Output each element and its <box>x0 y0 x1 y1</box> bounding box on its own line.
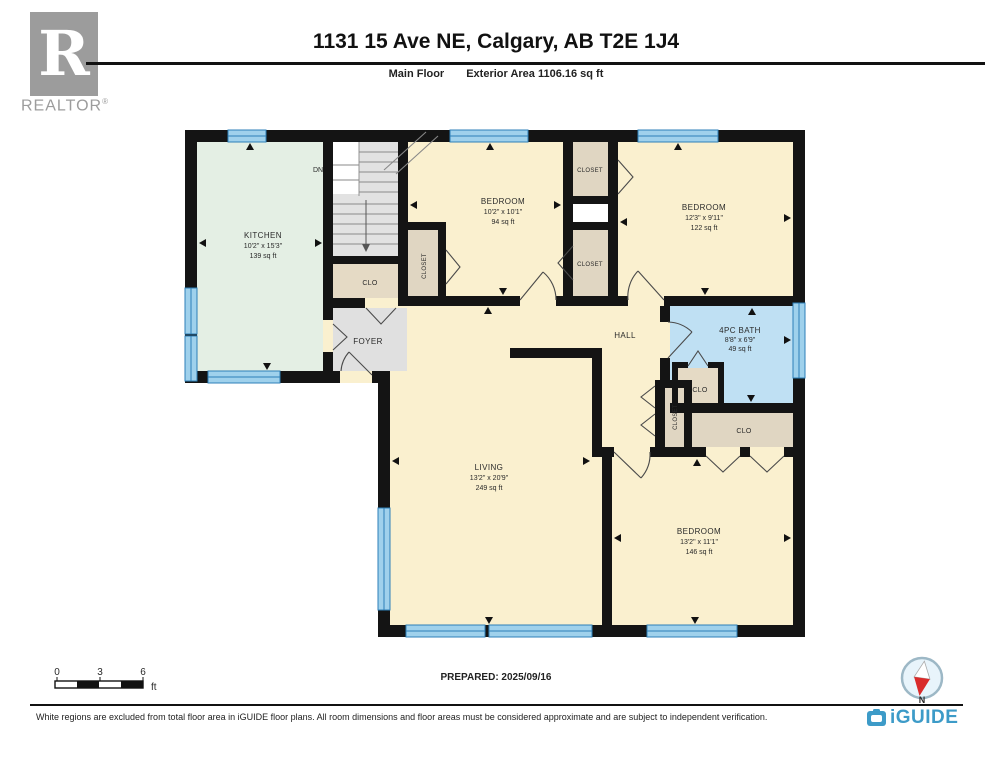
svg-text:49 sq ft: 49 sq ft <box>729 346 752 353</box>
closet-mid-upper-label: CLOSET <box>577 168 603 174</box>
stairs-landing <box>333 142 359 194</box>
svg-text:3: 3 <box>97 667 103 678</box>
closet-gap-white <box>573 204 608 222</box>
svg-text:13'2" x 20'9": 13'2" x 20'9" <box>470 475 509 482</box>
svg-text:122 sq ft: 122 sq ft <box>691 225 718 232</box>
prepared-date: PREPARED: 2025/09/16 <box>346 672 646 683</box>
clo-under-stairs-label: CLO <box>362 280 378 287</box>
svg-text:146 sq ft: 146 sq ft <box>686 549 713 556</box>
svg-text:6: 6 <box>140 667 146 678</box>
iguide-logo: iGUIDE <box>866 707 958 729</box>
svg-text:ft: ft <box>151 682 157 693</box>
svg-text:8'8" x 6'9": 8'8" x 6'9" <box>725 337 756 344</box>
disclaimer-text: White regions are excluded from total fl… <box>36 712 816 722</box>
floorplan-drawing: KITCHEN 10'2" x 15'3" 139 sq ft BEDROOM … <box>0 0 992 768</box>
svg-text:KITCHEN: KITCHEN <box>244 231 282 240</box>
svg-text:BEDROOM: BEDROOM <box>677 527 721 536</box>
svg-text:LIVING: LIVING <box>475 463 504 472</box>
foyer-label: FOYER <box>353 337 383 346</box>
svg-text:10'2" x 15'3": 10'2" x 15'3" <box>244 243 283 250</box>
svg-text:BEDROOM: BEDROOM <box>481 197 525 206</box>
svg-text:249 sq ft: 249 sq ft <box>476 485 503 492</box>
svg-text:12'3" x 9'11": 12'3" x 9'11" <box>685 215 723 222</box>
svg-text:BEDROOM: BEDROOM <box>682 203 726 212</box>
svg-text:4PC BATH: 4PC BATH <box>719 326 761 335</box>
stairs-dn-label: DN <box>313 167 323 174</box>
svg-text:94 sq ft: 94 sq ft <box>492 219 515 226</box>
svg-text:0: 0 <box>54 667 60 678</box>
floorplan-page: R REALTOR® 1131 15 Ave NE, Calgary, AB T… <box>0 0 992 768</box>
scale-bar: 0 3 6 ft <box>54 667 157 693</box>
closet-hall-vertical-label: CLOSET <box>673 404 679 430</box>
iguide-icon <box>866 708 887 728</box>
hall-label: HALL <box>614 331 636 340</box>
closet-bedroom1-label: CLOSET <box>422 253 428 279</box>
svg-text:10'2" x 10'1": 10'2" x 10'1" <box>484 209 523 216</box>
closet-bath-label: CLO <box>692 387 708 394</box>
compass: N <box>902 658 942 705</box>
closet-wide-label: CLO <box>736 428 752 435</box>
closet-mid-lower-label: CLOSET <box>577 262 603 268</box>
svg-text:13'2" x 11'1": 13'2" x 11'1" <box>680 539 718 546</box>
svg-text:139 sq ft: 139 sq ft <box>250 253 277 260</box>
iguide-wordmark: iGUIDE <box>890 707 958 729</box>
footer-rule <box>30 704 963 706</box>
